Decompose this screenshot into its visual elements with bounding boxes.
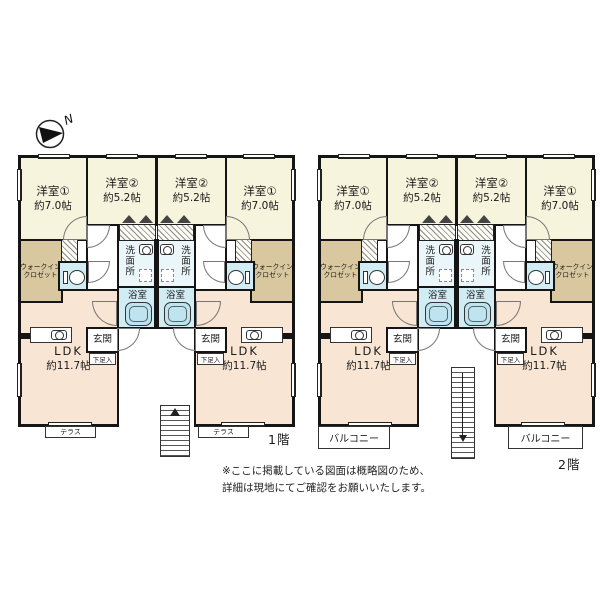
entrance-genkan: 玄関	[386, 327, 419, 353]
bathtub-icon	[425, 302, 452, 326]
folding-door-icon	[422, 215, 436, 223]
room-label: ウォークイン	[320, 263, 361, 271]
closet-hatch	[235, 239, 252, 263]
wall-segment	[154, 239, 159, 329]
walk-in-closet: ウォークイン クロゼット	[318, 239, 363, 303]
room-label: 浴室	[428, 289, 447, 302]
door-arc	[173, 328, 196, 351]
room-label: 玄関	[501, 333, 520, 346]
closet-hatch	[419, 224, 456, 241]
room-size: 約5.2帖	[173, 191, 211, 206]
window	[106, 154, 138, 159]
kitchen-counter	[541, 327, 583, 343]
bathroom: 浴室	[417, 286, 458, 329]
walk-in-closet: ウォークイン クロゼット	[18, 239, 63, 303]
closet-hatch	[157, 224, 194, 241]
toilet-icon	[69, 270, 85, 285]
room-label: ウォークイン	[252, 263, 293, 271]
folding-door-icon	[122, 215, 136, 223]
bathroom: 浴室	[155, 286, 196, 329]
room-label: 玄関	[201, 333, 220, 346]
window	[406, 154, 438, 159]
kitchen-sink-icon	[246, 330, 262, 340]
room-label: LDK	[54, 343, 83, 359]
shoe-cabinet: 下足入	[497, 353, 524, 365]
toilet-icon	[63, 271, 68, 284]
window	[17, 169, 22, 201]
room-size: 約11.7帖	[346, 359, 390, 374]
room-label: 浴室	[466, 289, 485, 302]
bathroom: 浴室	[117, 286, 158, 329]
entrance-genkan: 玄関	[86, 327, 119, 353]
room-label: 洋室②	[475, 175, 508, 191]
room-label: 浴室	[128, 289, 147, 302]
walk-in-closet: ウォークイン クロゼット	[250, 239, 295, 303]
window	[475, 154, 507, 159]
kitchen-counter	[30, 327, 72, 343]
window	[338, 154, 370, 159]
room-label: クロゼット	[556, 271, 590, 279]
toilet-icon	[245, 271, 250, 284]
window	[591, 363, 596, 397]
washroom: 洗面所	[417, 239, 458, 288]
sink-icon	[460, 244, 474, 255]
wall-segment	[155, 155, 158, 226]
shoe-cabinet: 下足入	[389, 353, 416, 365]
bathtub-icon	[125, 302, 152, 326]
kitchen-sink-icon	[51, 330, 67, 340]
stair-direction-arrow	[170, 408, 180, 416]
room-label: クロゼット	[256, 271, 290, 279]
room-label: 洗面所	[178, 245, 191, 277]
room-label: 洋室②	[105, 175, 138, 191]
room-size: 約7.0帖	[241, 199, 279, 214]
toilet-room	[525, 261, 555, 291]
bathroom: 浴室	[455, 286, 496, 329]
room-label: 浴室	[166, 289, 185, 302]
room-label: 洋室①	[543, 183, 576, 199]
room-size: 約7.0帖	[541, 199, 579, 214]
washer-pan-icon	[161, 269, 174, 282]
room-label: ウォークイン	[20, 263, 61, 271]
washer-pan-icon	[461, 269, 474, 282]
door-arc	[473, 328, 496, 351]
folding-door-icon	[177, 215, 191, 223]
toilet-icon	[369, 270, 385, 285]
building-floor1: 洋室① 約7.0帖 洋室② 約5.2帖 LDK 約11.7帖 ウォークイン クロ…	[18, 155, 295, 427]
folding-door-icon	[477, 215, 491, 223]
entrance-genkan: 玄関	[194, 327, 227, 353]
wall-segment	[455, 155, 458, 226]
closet-hatch	[535, 239, 552, 263]
room-label: LDK	[230, 343, 259, 359]
room-label: 玄関	[93, 333, 112, 346]
floor-label-1f: 1階	[268, 429, 290, 448]
washroom: 洗面所	[155, 239, 196, 288]
balcony: バルコニー	[318, 426, 390, 449]
room-label: 洗面所	[122, 245, 135, 277]
kitchen-sink-icon	[351, 330, 367, 340]
folding-door-icon	[460, 215, 474, 223]
window	[543, 154, 575, 159]
disclaimer-line1: ※ここに掲載している図面は概略図のため、	[222, 463, 431, 480]
sink-icon	[139, 244, 153, 255]
disclaimer-note: ※ここに掲載している図面は概略図のため、 詳細は現地にてご確認をお願いいたします…	[222, 463, 431, 497]
room-size: 約11.7帖	[222, 359, 266, 374]
floor-label-2f: 2階	[558, 454, 580, 473]
kitchen-counter	[330, 327, 372, 343]
floorplan-canvas: N 洋室① 約7.0帖 洋室② 約5.2帖 LDK 約11.7帖 ウォークイン …	[0, 0, 600, 600]
room-size: 約5.2帖	[473, 191, 511, 206]
room-label: 洋室②	[175, 175, 208, 191]
room-label: 下足入	[393, 354, 413, 364]
window	[317, 363, 322, 397]
room-label: LDK	[354, 343, 383, 359]
room-label: 下足入	[501, 354, 521, 364]
window	[175, 154, 207, 159]
room-label: 下足入	[201, 354, 221, 364]
wall-segment	[454, 239, 459, 329]
door-arc	[117, 328, 140, 351]
room-size: 約11.7帖	[522, 359, 566, 374]
kitchen-counter	[241, 327, 283, 343]
entrance-genkan: 玄関	[494, 327, 527, 353]
window	[291, 363, 296, 397]
room-label: 洗面所	[478, 245, 491, 277]
closet-hatch	[457, 224, 494, 241]
window	[591, 169, 596, 201]
balcony: バルコニー	[508, 426, 583, 449]
washer-pan-icon	[139, 269, 152, 282]
closet-hatch	[119, 224, 156, 241]
room-label: クロゼット	[24, 271, 58, 279]
balcony-label: バルコニー	[329, 430, 379, 445]
kitchen-sink-icon	[546, 330, 562, 340]
north-label: N	[62, 112, 76, 128]
folding-door-icon	[439, 215, 453, 223]
toilet-room	[225, 261, 255, 291]
terrace-label: テラス	[60, 427, 81, 437]
walk-in-closet: ウォークイン クロゼット	[550, 239, 595, 303]
washroom: 洗面所	[455, 239, 496, 288]
staircase	[451, 367, 475, 459]
terrace: テラス	[198, 426, 249, 438]
shoe-cabinet: 下足入	[89, 353, 116, 365]
window	[317, 169, 322, 201]
toilet-room	[58, 261, 88, 291]
toilet-icon	[545, 271, 550, 284]
room-size: 約5.2帖	[403, 191, 441, 206]
folding-door-icon	[139, 215, 153, 223]
shoe-cabinet: 下足入	[197, 353, 224, 365]
toilet-icon	[363, 271, 368, 284]
sink-icon	[160, 244, 174, 255]
room-label: 洋室①	[336, 183, 369, 199]
washroom: 洗面所	[117, 239, 158, 288]
toilet-icon	[228, 270, 244, 285]
room-label: 洋室②	[405, 175, 438, 191]
folding-door-icon	[160, 215, 174, 223]
room-label: 下足入	[93, 354, 113, 364]
room-label: 洗面所	[422, 245, 435, 277]
room-size: 約7.0帖	[34, 199, 72, 214]
closet-hatch	[61, 239, 78, 263]
room-label: ウォークイン	[552, 263, 593, 271]
building-floor2: 洋室① 約7.0帖 洋室② 約5.2帖 LDK 約11.7帖 ウォークイン クロ…	[318, 155, 595, 427]
sink-icon	[439, 244, 453, 255]
room-label: LDK	[530, 343, 559, 359]
window	[17, 363, 22, 397]
toilet-room	[358, 261, 388, 291]
closet-hatch	[361, 239, 378, 263]
disclaimer-line2: 詳細は現地にてご確認をお願いいたします。	[222, 480, 431, 497]
room-label: 玄関	[393, 333, 412, 346]
window	[243, 154, 275, 159]
stair-direction-arrow	[459, 435, 467, 442]
room-size: 約5.2帖	[103, 191, 141, 206]
room-label: 洋室①	[36, 183, 69, 199]
room-size: 約11.7帖	[46, 359, 90, 374]
balcony-label: バルコニー	[521, 430, 571, 445]
window	[291, 169, 296, 201]
washer-pan-icon	[439, 269, 452, 282]
terrace-label: テラス	[213, 427, 234, 437]
room-size: 約7.0帖	[334, 199, 372, 214]
stair-direction-line	[462, 373, 463, 435]
north-arrow-icon: N	[30, 112, 80, 156]
bathtub-icon	[464, 302, 491, 326]
terrace: テラス	[45, 426, 96, 438]
bathtub-icon	[164, 302, 191, 326]
toilet-icon	[528, 270, 544, 285]
window	[38, 154, 70, 159]
room-label: クロゼット	[324, 271, 358, 279]
door-arc	[417, 328, 440, 351]
room-label: 洋室①	[243, 183, 276, 199]
